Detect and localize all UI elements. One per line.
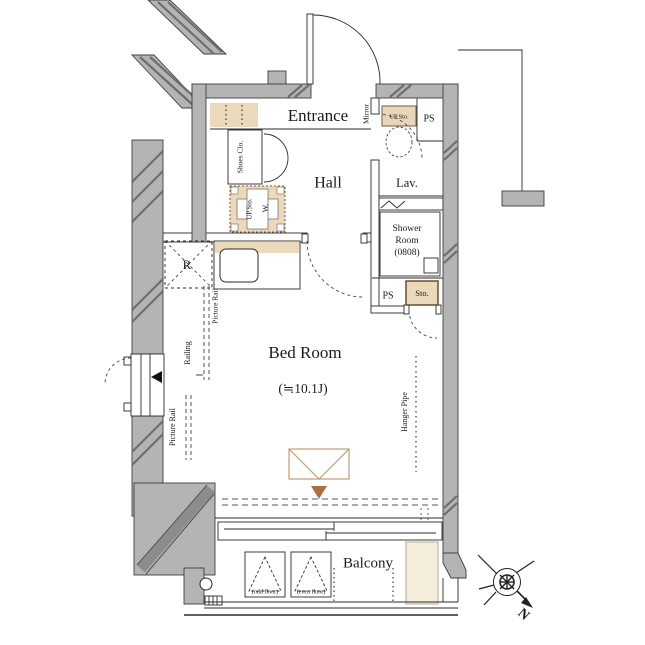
hanger-pipe-label: Hanger Pipe xyxy=(400,392,409,432)
railing-label: Railing xyxy=(183,341,192,365)
hatch-line xyxy=(158,2,214,54)
laundry-storage-label: UP.Sto. xyxy=(246,198,254,219)
bedroom-label: Bed Room xyxy=(268,343,341,362)
shower-label-1: Shower xyxy=(392,224,422,234)
balcony-drain xyxy=(200,578,212,590)
window-frame xyxy=(131,354,164,416)
picture-rail-lower-label: Picture Rail xyxy=(168,407,177,446)
toilet-storage-label: UP.Sto. xyxy=(389,113,409,120)
lav-label: Lav. xyxy=(396,176,418,190)
washer-label: W. xyxy=(261,204,270,213)
upper-shoe-shelf xyxy=(210,103,258,127)
compass-spoke xyxy=(479,585,494,589)
direction-triangle xyxy=(311,486,327,499)
partition-hall-lav xyxy=(371,98,379,114)
left-wall xyxy=(132,140,163,354)
balcony xyxy=(184,542,458,615)
even-floor-label: (even floor) xyxy=(297,588,326,595)
pan-foot xyxy=(277,187,284,194)
door-post xyxy=(404,305,409,314)
floor-plan-page: Entrance Hall Lav. Mirror PS UP.Sto. Sho… xyxy=(0,0,645,645)
entrance-door-leaf xyxy=(307,14,313,84)
picture-rail-upper-label: Picture Rail xyxy=(211,288,220,324)
closet-door-arc xyxy=(264,158,288,182)
door-post xyxy=(361,234,367,243)
north-label: N xyxy=(514,606,532,624)
right-wall-foot xyxy=(443,553,466,578)
odd-floor-label: (odd floor) xyxy=(252,588,278,595)
laundry-triangle xyxy=(249,557,281,591)
partition-lav-shower xyxy=(379,198,443,210)
hatch-line xyxy=(140,57,194,106)
mirror-label: Mirror xyxy=(362,104,371,124)
right-outer-stub xyxy=(502,191,544,206)
balcony-partition-panel xyxy=(406,542,438,604)
pan-foot xyxy=(231,187,238,194)
window-sill-stub xyxy=(124,403,131,411)
compass-spoke xyxy=(478,555,497,574)
bedroom-door-arc xyxy=(307,241,363,297)
top-wall-bump xyxy=(268,71,286,84)
storage-label: Sto. xyxy=(415,288,428,298)
balcony-label: Balcony xyxy=(343,555,393,571)
top-wall xyxy=(192,84,311,98)
compass-spoke xyxy=(484,592,496,605)
kitchen-sink xyxy=(220,249,258,282)
shower-label-3: (0808) xyxy=(394,247,419,258)
shoes-closet-label: Shoes Clo. xyxy=(236,141,245,174)
ceiling-symbol-line xyxy=(289,449,319,479)
ceiling-symbol-box xyxy=(289,449,349,479)
storage-door-arc xyxy=(409,310,437,338)
partition-sto-bedroom xyxy=(371,306,406,313)
hall-label: Hall xyxy=(314,175,342,192)
pan-foot xyxy=(231,224,238,231)
entrance-door-arc xyxy=(313,15,380,84)
site-outline xyxy=(458,50,522,191)
entrance-left-wall xyxy=(192,84,206,242)
bedroom-size-label: (≒10.1J) xyxy=(278,381,327,396)
compass-spoke xyxy=(516,561,534,573)
labels: Entrance Hall Lav. Mirror PS UP.Sto. Sho… xyxy=(168,104,532,624)
shoes-closet xyxy=(228,130,262,184)
compass-rose xyxy=(478,555,534,608)
door-post xyxy=(436,305,441,314)
closet-door-arc xyxy=(264,134,288,158)
sliding-window xyxy=(218,522,442,540)
floor-plan: Entrance Hall Lav. Mirror PS UP.Sto. Sho… xyxy=(0,0,645,645)
ps-top-label: PS xyxy=(423,113,434,124)
shower-label-2: Room xyxy=(395,236,419,246)
drain-grate xyxy=(205,596,222,605)
pan-foot xyxy=(277,224,284,231)
south-window xyxy=(215,518,443,540)
ceiling-symbol-line xyxy=(319,449,349,479)
shower-corner-box xyxy=(424,258,438,273)
laundry-triangle xyxy=(295,557,327,591)
left-window xyxy=(105,354,164,416)
refrigerator-label: R xyxy=(183,257,192,272)
entrance-label: Entrance xyxy=(288,106,348,125)
toilet-bowl xyxy=(386,127,412,157)
ps-mid-label: PS xyxy=(382,290,393,301)
partition-hall-lav xyxy=(371,160,379,312)
